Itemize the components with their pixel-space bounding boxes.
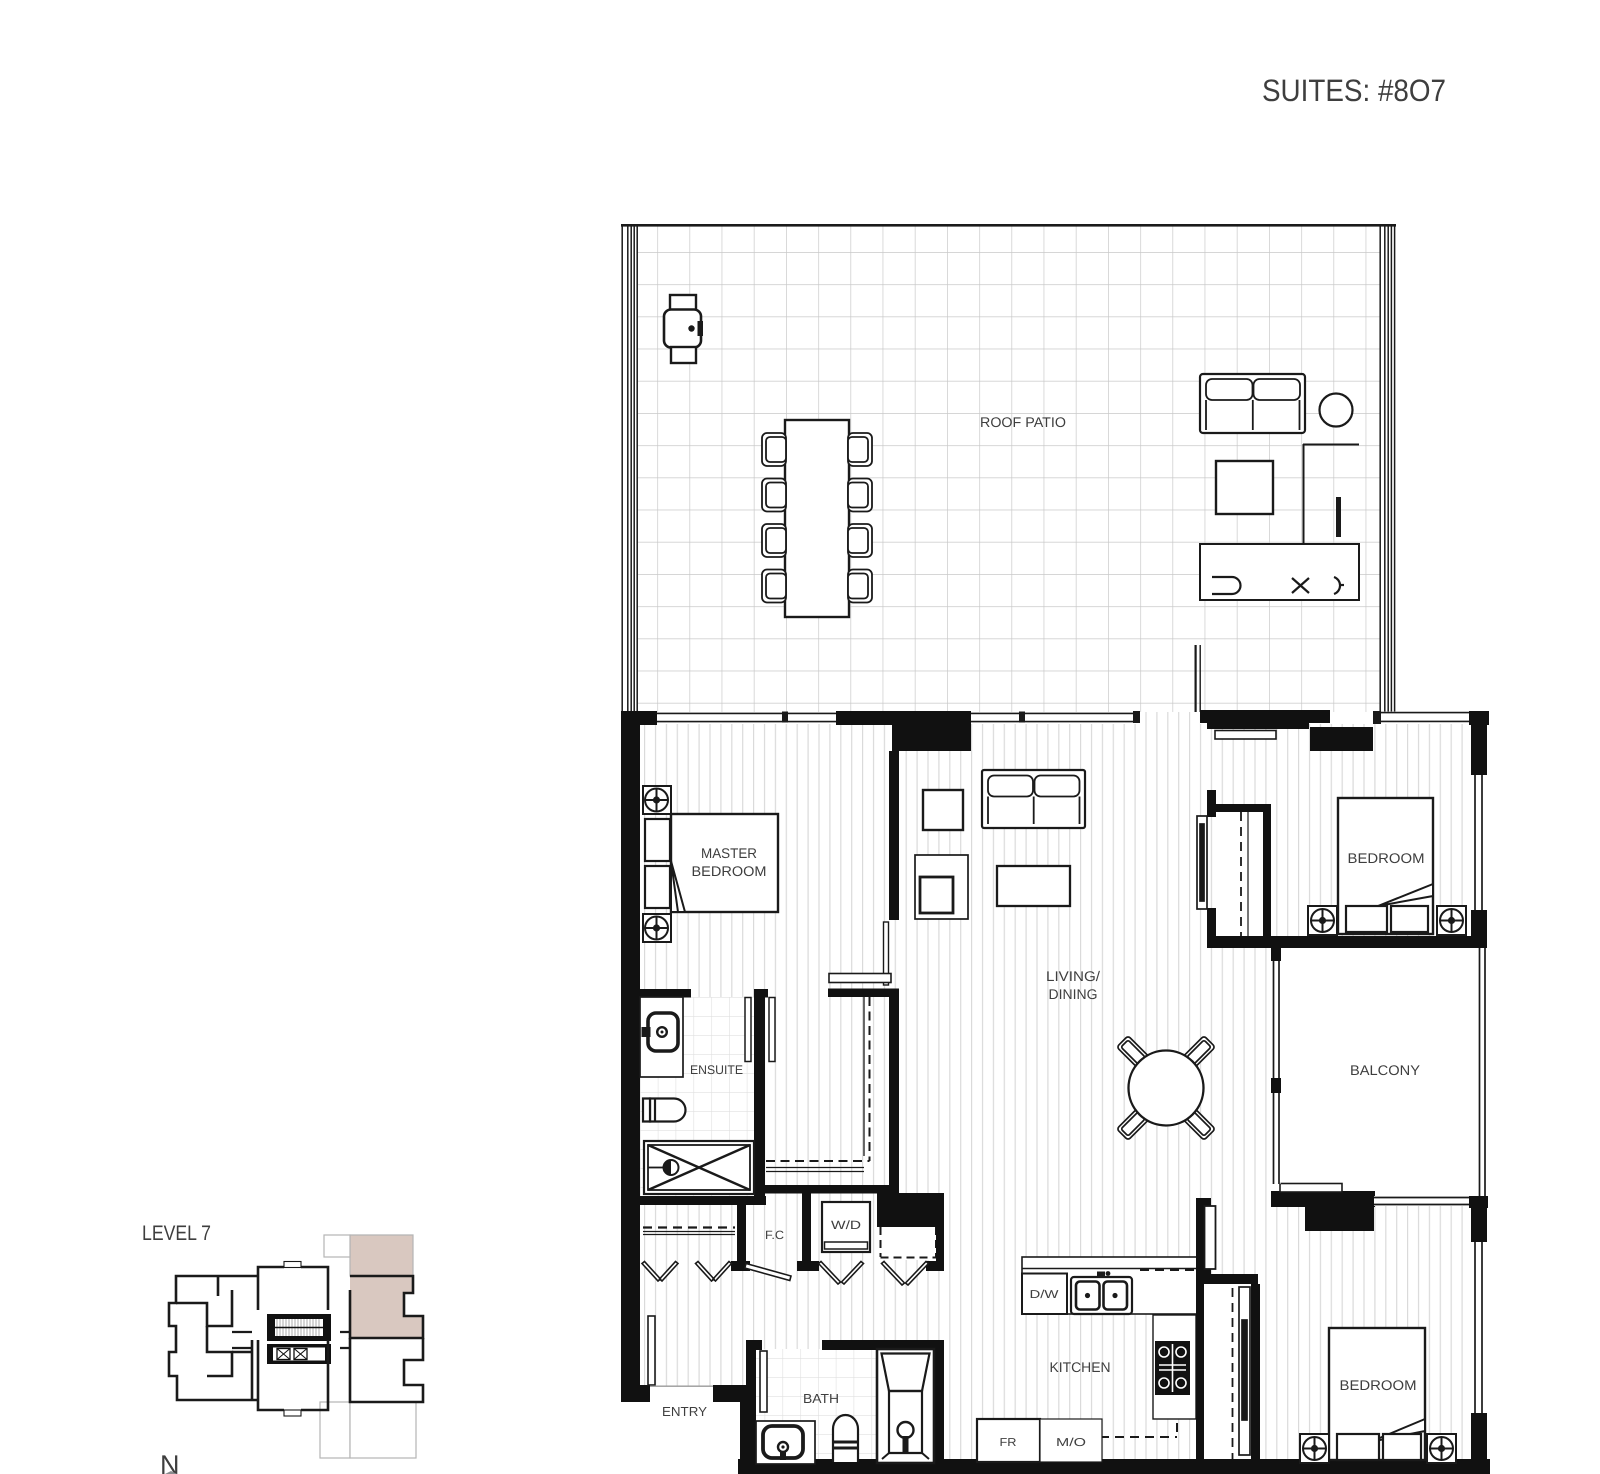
svg-text:KITCHEN: KITCHEN — [1050, 1359, 1111, 1375]
svg-text:ENTRY: ENTRY — [662, 1404, 707, 1419]
svg-text:BATH: BATH — [803, 1391, 839, 1406]
svg-text:ROOF PATIO: ROOF PATIO — [980, 414, 1066, 430]
svg-text:D/W: D/W — [1030, 1289, 1059, 1301]
svg-text:M/O: M/O — [1056, 1437, 1086, 1449]
svg-text:MASTER: MASTER — [701, 845, 757, 861]
svg-text:BEDROOM: BEDROOM — [1348, 850, 1425, 866]
svg-text:LIVING/: LIVING/ — [1046, 968, 1100, 984]
svg-text:SUITES: #8O7: SUITES: #8O7 — [1262, 73, 1446, 108]
svg-text:BALCONY: BALCONY — [1350, 1062, 1421, 1078]
svg-text:DINING: DINING — [1049, 986, 1098, 1002]
svg-text:FR: FR — [1000, 1437, 1017, 1449]
svg-text:BEDROOM: BEDROOM — [692, 863, 767, 879]
svg-text:ENSUITE: ENSUITE — [690, 1063, 743, 1077]
svg-text:LEVEL 7: LEVEL 7 — [142, 1222, 211, 1245]
svg-text:F.C: F.C — [765, 1228, 784, 1242]
svg-text:N: N — [160, 1450, 180, 1474]
svg-text:BEDROOM: BEDROOM — [1340, 1377, 1417, 1393]
svg-text:W/D: W/D — [831, 1218, 861, 1232]
